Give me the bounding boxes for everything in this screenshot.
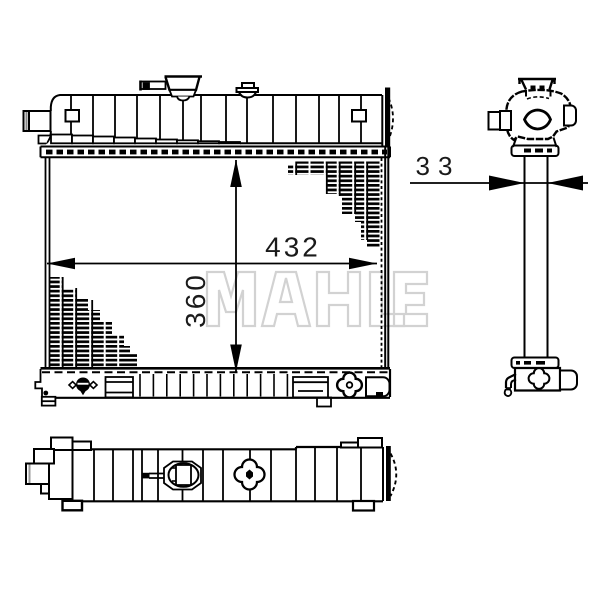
svg-text:432: 432 (265, 232, 321, 263)
svg-text:360: 360 (180, 272, 211, 328)
svg-text:33: 33 (416, 151, 461, 181)
